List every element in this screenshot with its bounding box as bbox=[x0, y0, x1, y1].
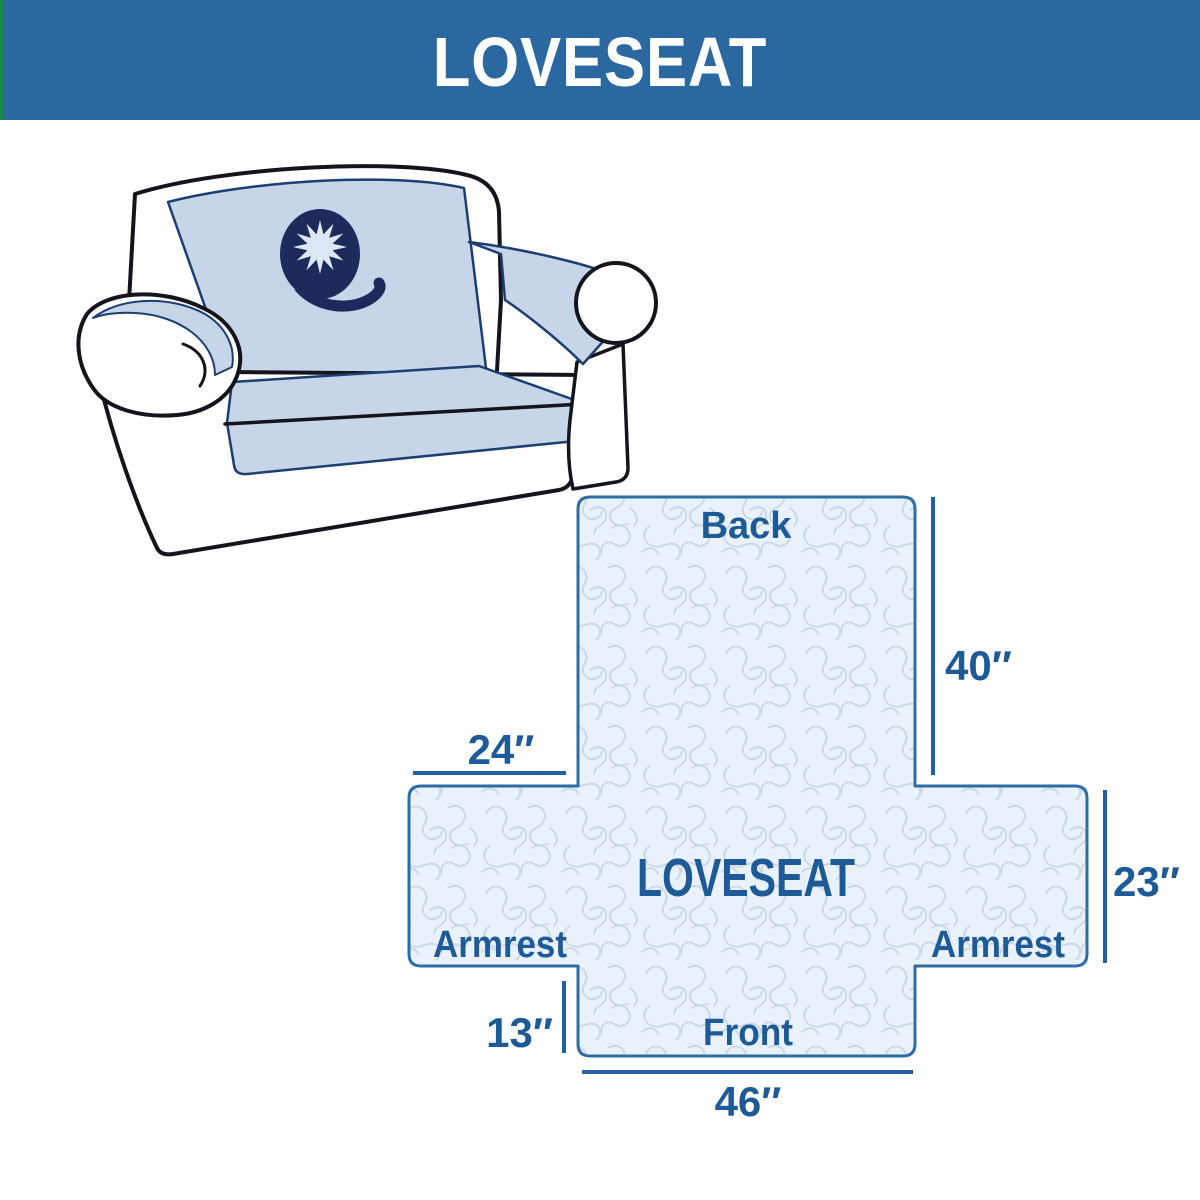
dim-front-width: 46″ bbox=[715, 1078, 782, 1125]
back-section-label: Back bbox=[701, 505, 793, 547]
scene-canvas: Back LOVESEAT Armrest Armrest Front 40″ … bbox=[0, 0, 1200, 1200]
sofa-right-leg-panel bbox=[569, 344, 628, 489]
dim-back-width: 24″ bbox=[468, 726, 535, 773]
sofa-illustration bbox=[78, 166, 656, 554]
dimension-diagram: Back LOVESEAT Armrest Armrest Front 40″ … bbox=[409, 497, 1180, 1125]
center-loveseat-label: LOVESEAT bbox=[637, 848, 855, 908]
dim-armrest-height: 23″ bbox=[1113, 858, 1180, 905]
page: LOVESEAT bbox=[0, 0, 1200, 1200]
dim-back-height: 40″ bbox=[945, 642, 1012, 689]
front-section-label: Front bbox=[703, 1012, 793, 1054]
cover-outline-pattern bbox=[409, 497, 1087, 1056]
sofa-right-arm-roll bbox=[576, 263, 656, 343]
armrest-right-label: Armrest bbox=[931, 924, 1065, 966]
armrest-left-label: Armrest bbox=[433, 924, 567, 966]
dim-front-drop: 13″ bbox=[486, 1009, 553, 1056]
